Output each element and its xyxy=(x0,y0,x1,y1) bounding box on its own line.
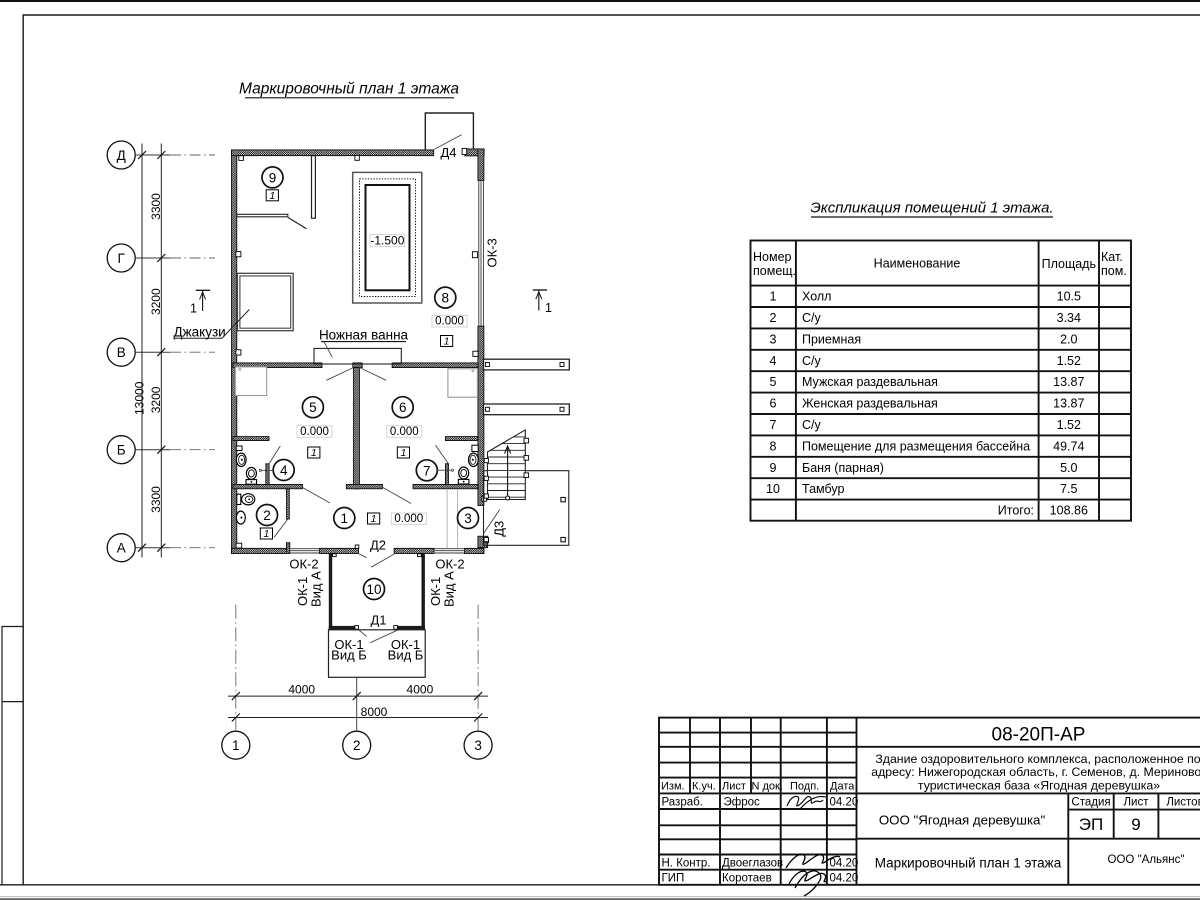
svg-text:4: 4 xyxy=(280,463,288,478)
svg-text:Номер: Номер xyxy=(753,250,792,264)
svg-text:помещ.: помещ. xyxy=(753,264,796,278)
svg-text:Д2: Д2 xyxy=(370,538,386,553)
svg-text:0.000: 0.000 xyxy=(390,426,419,438)
svg-text:3.34: 3.34 xyxy=(1057,311,1081,325)
svg-text:Лист: Лист xyxy=(722,781,746,793)
svg-text:1: 1 xyxy=(190,302,197,316)
svg-text:4000: 4000 xyxy=(288,683,315,697)
svg-text:Д4: Д4 xyxy=(441,145,457,160)
svg-text:3300: 3300 xyxy=(149,486,163,513)
svg-text:Маркировочный план 1 этажа: Маркировочный план 1 этажа xyxy=(875,856,1062,871)
svg-text:Коротаев: Коротаев xyxy=(722,873,772,885)
svg-text:1: 1 xyxy=(545,301,552,315)
svg-text:4: 4 xyxy=(770,354,777,368)
svg-text:Площадь: Площадь xyxy=(1042,257,1096,271)
svg-text:7: 7 xyxy=(770,418,777,432)
svg-text:08-20П-АР: 08-20П-АР xyxy=(992,725,1086,746)
svg-text:Ножная ванна: Ножная ванна xyxy=(319,327,409,342)
svg-text:1.52: 1.52 xyxy=(1057,354,1081,368)
svg-text:6: 6 xyxy=(399,400,407,415)
svg-text:Джакузи: Джакузи xyxy=(174,324,226,339)
svg-text:ООО "Альянс": ООО "Альянс" xyxy=(1108,854,1185,866)
svg-text:1.52: 1.52 xyxy=(1057,418,1081,432)
svg-text:1: 1 xyxy=(444,336,450,348)
svg-text:7: 7 xyxy=(423,463,431,478)
svg-text:1: 1 xyxy=(232,738,240,753)
svg-text:ГИП: ГИП xyxy=(662,873,685,885)
svg-text:Помещение для размещения бассе: Помещение для размещения бассейна xyxy=(802,439,1030,453)
svg-text:Эфрос: Эфрос xyxy=(724,797,761,809)
svg-text:Дата: Дата xyxy=(830,781,855,793)
svg-text:адресу: Нижегородская область,: адресу: Нижегородская область, г. Семено… xyxy=(871,765,1200,779)
svg-text:ОК-3: ОК-3 xyxy=(485,238,500,267)
svg-text:Д1: Д1 xyxy=(371,613,387,628)
svg-text:04.20: 04.20 xyxy=(830,858,859,870)
svg-text:Вид А: Вид А xyxy=(309,571,324,607)
svg-text:10: 10 xyxy=(766,482,780,496)
svg-text:туристическая база «Ягодная де: туристическая база «Ягодная деревушка» xyxy=(918,778,1160,792)
svg-text:Мужская раздевальная: Мужская раздевальная xyxy=(802,375,938,389)
svg-text:Стадия: Стадия xyxy=(1071,797,1110,809)
svg-text:Приемная: Приемная xyxy=(802,332,861,346)
svg-text:108.86: 108.86 xyxy=(1050,504,1088,518)
svg-text:13.87: 13.87 xyxy=(1053,375,1084,389)
svg-text:Холл: Холл xyxy=(802,290,831,304)
svg-text:3200: 3200 xyxy=(149,386,163,413)
svg-text:10: 10 xyxy=(366,582,381,597)
svg-text:Женская раздевальная: Женская раздевальная xyxy=(802,397,938,411)
svg-text:Двоеглазов: Двоеглазов xyxy=(722,858,783,870)
svg-text:Наименование: Наименование xyxy=(874,257,961,271)
svg-text:3300: 3300 xyxy=(149,193,163,220)
svg-text:Кат.: Кат. xyxy=(1101,250,1123,264)
svg-text:5: 5 xyxy=(770,375,777,389)
svg-text:1: 1 xyxy=(263,528,269,540)
svg-text:Экспликация помещений 1 этажа.: Экспликация помещений 1 этажа. xyxy=(810,200,1053,217)
svg-text:1: 1 xyxy=(371,513,377,525)
svg-text:10.5: 10.5 xyxy=(1057,290,1081,304)
svg-text:ООО "Ягодная деревушка": ООО "Ягодная деревушка" xyxy=(879,813,1046,828)
svg-text:1: 1 xyxy=(770,290,777,304)
svg-text:Изм.: Изм. xyxy=(661,781,685,793)
svg-text:3: 3 xyxy=(464,511,472,526)
svg-text:С/у: С/у xyxy=(802,418,822,432)
svg-text:А: А xyxy=(117,541,126,556)
svg-text:Баня (парная): Баня (парная) xyxy=(802,461,884,475)
svg-text:13.87: 13.87 xyxy=(1053,397,1084,411)
svg-text:N док.: N док. xyxy=(752,781,783,793)
svg-text:9: 9 xyxy=(1131,815,1140,834)
svg-text:1: 1 xyxy=(269,190,275,202)
svg-text:1: 1 xyxy=(400,447,406,459)
svg-text:2: 2 xyxy=(263,508,271,523)
svg-text:ЭП: ЭП xyxy=(1079,815,1103,834)
svg-text:1: 1 xyxy=(341,511,349,526)
svg-text:пом.: пом. xyxy=(1101,264,1127,278)
svg-text:Г: Г xyxy=(118,251,126,266)
svg-text:8000: 8000 xyxy=(361,705,388,719)
svg-text:04.20: 04.20 xyxy=(830,797,859,809)
svg-text:2: 2 xyxy=(770,311,777,325)
svg-text:04.20: 04.20 xyxy=(830,873,859,885)
svg-text:13000: 13000 xyxy=(133,381,147,415)
svg-text:Листов: Листов xyxy=(1166,797,1200,809)
svg-text:3: 3 xyxy=(770,332,777,346)
svg-text:0.000: 0.000 xyxy=(394,513,423,525)
svg-text:Итого:: Итого: xyxy=(998,504,1034,518)
svg-text:Б: Б xyxy=(117,443,126,458)
svg-text:0.000: 0.000 xyxy=(300,426,329,438)
svg-text:49.74: 49.74 xyxy=(1053,439,1084,453)
svg-text:Вид Б: Вид Б xyxy=(388,648,424,663)
svg-text:К.уч.: К.уч. xyxy=(692,781,716,793)
svg-text:2: 2 xyxy=(353,738,361,753)
svg-text:Д: Д xyxy=(117,148,126,163)
svg-text:ОК-2: ОК-2 xyxy=(289,557,318,572)
svg-text:2.0: 2.0 xyxy=(1060,332,1077,346)
svg-text:С/у: С/у xyxy=(802,354,822,368)
svg-text:5: 5 xyxy=(309,400,317,415)
svg-text:5.0: 5.0 xyxy=(1060,461,1077,475)
svg-text:1: 1 xyxy=(311,447,317,459)
svg-text:Н. Контр.: Н. Контр. xyxy=(662,858,711,870)
svg-text:8: 8 xyxy=(770,439,777,453)
svg-text:Тамбур: Тамбур xyxy=(802,482,844,496)
svg-text:Вид А: Вид А xyxy=(442,571,457,607)
svg-text:Здание оздоровительного компле: Здание оздоровительного комплекса, распо… xyxy=(875,752,1200,766)
svg-text:Разраб.: Разраб. xyxy=(662,797,703,809)
svg-text:3: 3 xyxy=(474,738,482,753)
svg-text:9: 9 xyxy=(269,170,277,185)
svg-text:Д3: Д3 xyxy=(492,521,507,537)
svg-text:Подп.: Подп. xyxy=(790,781,819,793)
svg-text:Лист: Лист xyxy=(1124,797,1150,809)
svg-text:7.5: 7.5 xyxy=(1060,482,1077,496)
svg-text:Маркировочный план 1 этажа: Маркировочный план 1 этажа xyxy=(239,81,459,98)
svg-text:9: 9 xyxy=(770,461,777,475)
svg-text:Вид Б: Вид Б xyxy=(331,648,367,663)
svg-text:6: 6 xyxy=(770,397,777,411)
svg-text:0.000: 0.000 xyxy=(435,316,464,328)
svg-text:С/у: С/у xyxy=(802,311,822,325)
svg-text:4000: 4000 xyxy=(407,683,434,697)
svg-text:8: 8 xyxy=(442,291,450,306)
svg-text:ОК-2: ОК-2 xyxy=(435,557,464,572)
svg-text:3200: 3200 xyxy=(149,288,163,315)
svg-text:В: В xyxy=(117,345,126,360)
svg-text:-1.500: -1.500 xyxy=(370,233,404,247)
